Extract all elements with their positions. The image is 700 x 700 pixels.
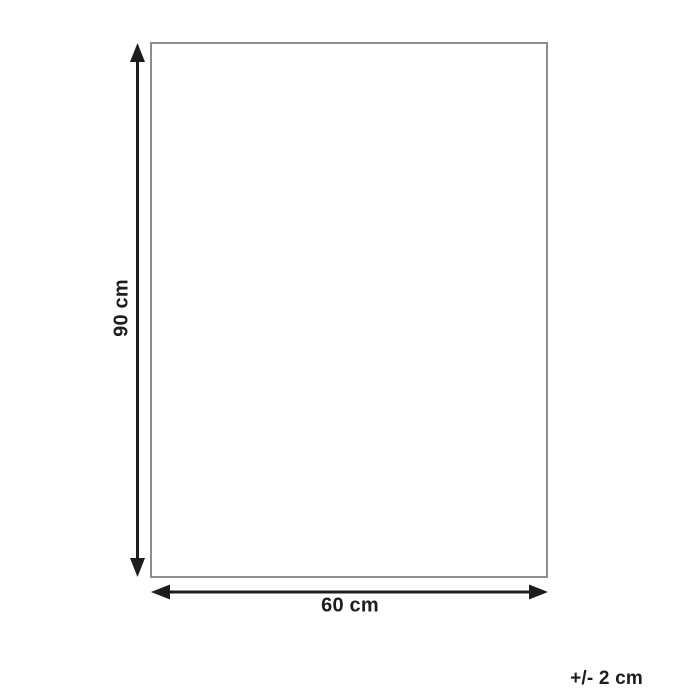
width-dimension-label: 60 cm [321,595,379,618]
dimension-diagram: 90 cm 60 cm +/- 2 cm [0,0,700,700]
height-dimension-label: 90 cm [111,279,134,337]
tolerance-label: +/- 2 cm [570,668,643,690]
product-outline-rectangle [150,42,548,578]
